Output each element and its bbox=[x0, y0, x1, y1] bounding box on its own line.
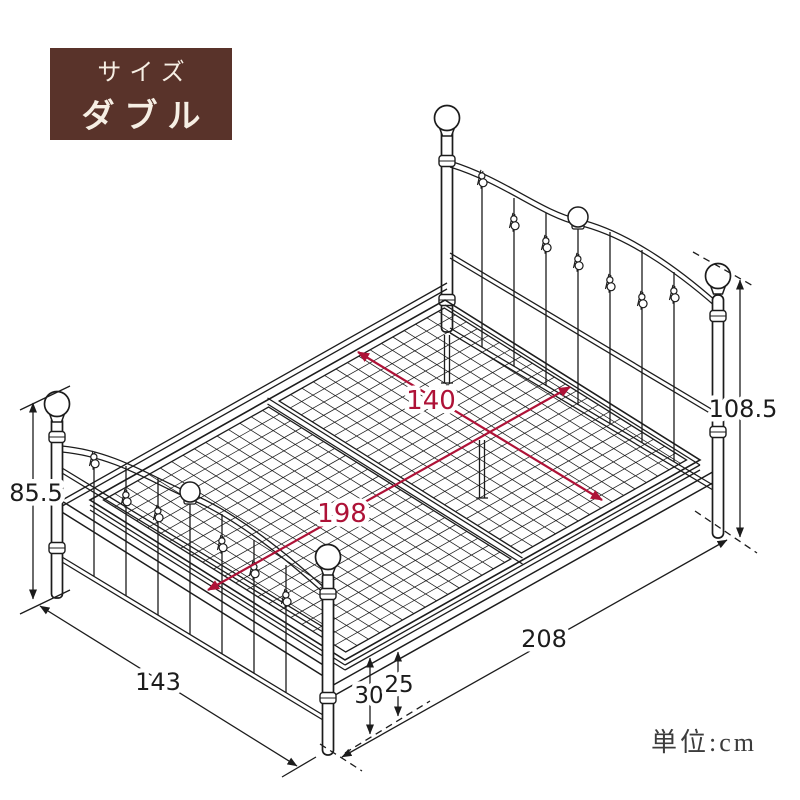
mesh-base bbox=[90, 300, 700, 660]
ball-ornament-icon bbox=[568, 207, 588, 229]
footboard-far-post bbox=[52, 417, 63, 598]
unit-label: 単位:cm bbox=[624, 722, 784, 759]
headboard bbox=[435, 106, 719, 494]
knot-ornament-icon bbox=[472, 169, 491, 189]
finial-ball-icon bbox=[435, 106, 460, 137]
dimension-annotations: 85.5 108.5 143 208 30 25 bbox=[9, 252, 777, 777]
dim-frame-height: 30 bbox=[354, 683, 383, 709]
dim-total-length: 208 bbox=[521, 625, 567, 653]
footboard-bottom-rail bbox=[62, 557, 328, 723]
far-side-rail bbox=[57, 283, 447, 509]
headboard-bottom-rail bbox=[450, 328, 718, 493]
size-badge: サイズ ダブル bbox=[50, 48, 232, 140]
dim-under-clearance: 25 bbox=[384, 672, 413, 698]
dim-footboard-height: 85.5 bbox=[9, 479, 62, 507]
headboard-mid-rail bbox=[450, 253, 718, 418]
dim-inner-width: 140 bbox=[406, 386, 456, 416]
dim-inner-length: 198 bbox=[317, 499, 367, 529]
size-badge-label: サイズ bbox=[89, 52, 192, 87]
size-badge-value: ダブル bbox=[72, 89, 211, 137]
headboard-top-rail bbox=[450, 161, 716, 301]
bed-dimension-diagram: 85.5 108.5 143 208 30 25 140 198 サイズ ダブル… bbox=[0, 0, 800, 800]
footboard-top-rail bbox=[62, 446, 328, 591]
dim-total-width: 143 bbox=[135, 668, 181, 696]
dim-headboard-height: 108.5 bbox=[709, 395, 778, 423]
